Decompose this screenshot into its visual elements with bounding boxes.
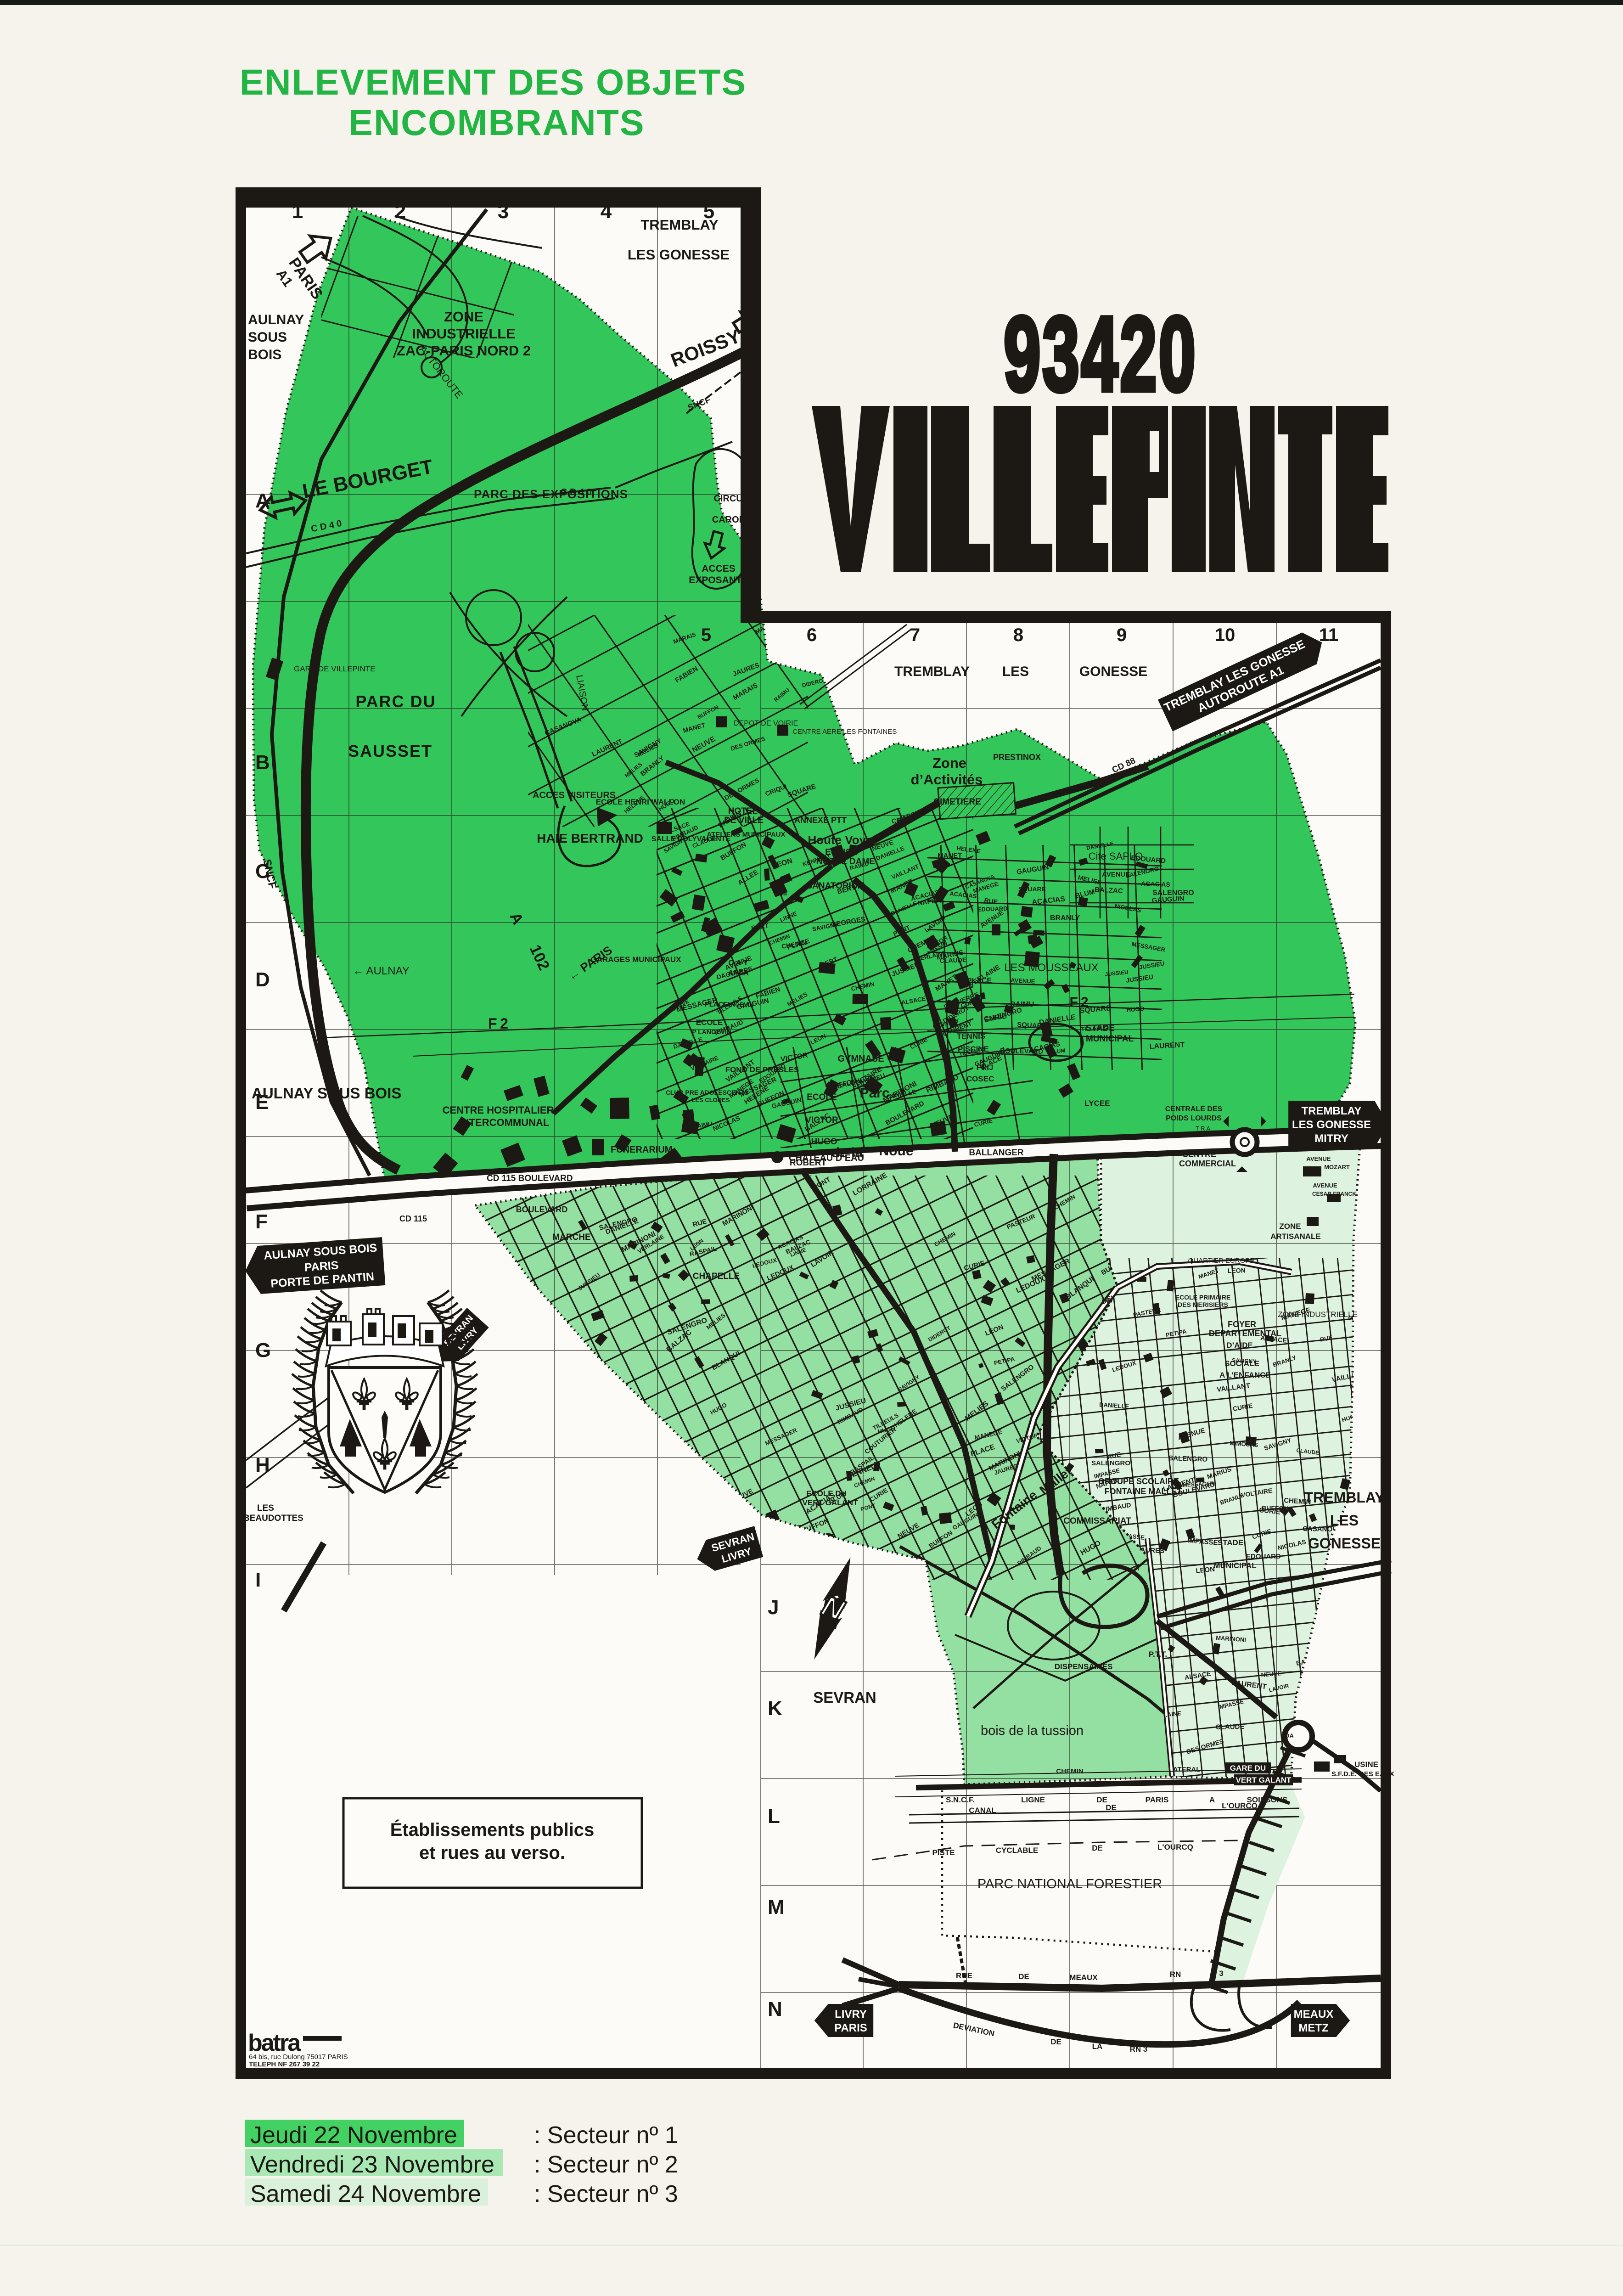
svg-text:B: B (255, 751, 270, 774)
svg-text:AULNAY: AULNAY (248, 312, 304, 327)
svg-text:BALZAC: BALZAC (1095, 886, 1123, 895)
svg-text:RN 3: RN 3 (1130, 2045, 1148, 2054)
svg-text:CENTRE AERE LES FONTAINES: CENTRE AERE LES FONTAINES (792, 728, 897, 736)
svg-text:Samedi 24 Novembre: Samedi 24 Novembre (250, 2181, 481, 2207)
svg-text:F 2: F 2 (1069, 995, 1088, 1010)
svg-text:ZAC-PARIS NORD 2: ZAC-PARIS NORD 2 (397, 343, 531, 359)
svg-text:PISCINE: PISCINE (958, 1045, 989, 1053)
svg-text:INDUSTRIELLE: INDUSTRIELLE (412, 326, 516, 342)
svg-text:COSEC: COSEC (966, 1075, 994, 1083)
svg-text:GARE DU: GARE DU (1230, 1764, 1266, 1773)
svg-text:G: G (255, 1339, 271, 1362)
svg-text:METZ: METZ (1298, 2022, 1328, 2034)
svg-text:CENTRE HOSPITALIER: CENTRE HOSPITALIER (443, 1104, 554, 1116)
svg-text:MEAUX: MEAUX (1294, 2008, 1334, 2020)
svg-text:COMMISSARIAT: COMMISSARIAT (1063, 1516, 1131, 1526)
svg-text:EGLISE: EGLISE (825, 848, 857, 857)
svg-text:GARE DE VILLEPINTE: GARE DE VILLEPINTE (294, 664, 376, 673)
svg-text:CENTRE: CENTRE (1182, 1150, 1216, 1159)
svg-text:INTERCOMMUNAL: INTERCOMMUNAL (459, 1117, 550, 1128)
svg-text:DES MERISIERS: DES MERISIERS (1178, 1301, 1228, 1308)
svg-text:MUNICIPAL: MUNICIPAL (1213, 1561, 1256, 1570)
svg-text:A L’ENFANCE: A L’ENFANCE (1219, 1371, 1271, 1379)
svg-text:SALENGRO: SALENGRO (1168, 1454, 1208, 1463)
svg-text:S.N.C.F.: S.N.C.F. (946, 1795, 975, 1804)
svg-text:VERT GALANT: VERT GALANT (803, 1498, 859, 1507)
svg-text:PLACE: PLACE (967, 977, 992, 985)
svg-text:Jeudi 22 Novembre: Jeudi 22 Novembre (250, 2122, 457, 2149)
svg-text:SOCIALE: SOCIALE (1224, 1359, 1259, 1368)
svg-text:PMI: PMI (774, 889, 787, 897)
svg-text:D: D (255, 968, 270, 991)
svg-text:BOIS: BOIS (248, 347, 281, 362)
svg-text:Noue: Noue (879, 1143, 914, 1159)
svg-text:EXPOSANTS: EXPOSANTS (689, 575, 748, 585)
svg-text:GONESSE: GONESSE (1308, 1535, 1381, 1552)
svg-text:LYCEE: LYCEE (1084, 1099, 1110, 1108)
svg-text:CENTRALE DES: CENTRALE DES (1165, 1105, 1223, 1113)
svg-text:T R A: T R A (1196, 1125, 1211, 1132)
svg-text:CHEMIN: CHEMIN (1056, 1767, 1083, 1775)
svg-text:SAUSSET: SAUSSET (348, 742, 432, 760)
svg-text:AVENUE: AVENUE (1011, 977, 1035, 985)
svg-text:MUNICIPAL: MUNICIPAL (1086, 1034, 1134, 1044)
svg-text:DEPOT DE VOIRIE: DEPOT DE VOIRIE (734, 720, 798, 727)
svg-text:7: 7 (910, 625, 920, 645)
svg-text:USINE: USINE (1354, 1760, 1378, 1769)
svg-text:ZONE: ZONE (1279, 1222, 1301, 1231)
svg-text:L: L (768, 1805, 780, 1828)
svg-text:AVENUE: AVENUE (1313, 1182, 1337, 1189)
svg-text:APFA: APFA (728, 968, 748, 977)
svg-text:LA: LA (1092, 2042, 1103, 2051)
svg-text:BUFFON: BUFFON (1262, 1504, 1289, 1512)
svg-text:← AULNAY: ← AULNAY (353, 965, 410, 977)
svg-text:MOZART: MOZART (1324, 1164, 1350, 1171)
svg-text:DE: DE (1018, 1972, 1029, 1981)
svg-text:10: 10 (1215, 625, 1236, 645)
svg-text:DE: DE (1106, 1803, 1117, 1812)
svg-text:RN: RN (1170, 1970, 1181, 1979)
svg-text:P.T.T.: P.T.T. (1149, 1650, 1167, 1659)
svg-text:LES: LES (1002, 664, 1029, 679)
svg-text:DISPENSAIRES: DISPENSAIRES (1055, 1662, 1113, 1671)
svg-text:et rues au verso.: et rues au verso. (419, 1843, 565, 1863)
svg-text:64 bis, rue Dulong 75017 PARIS: 64 bis, rue Dulong 75017 PARIS (249, 2053, 348, 2061)
svg-text:ENLEVEMENT DES OBJETS: ENLEVEMENT DES OBJETS (240, 62, 747, 102)
svg-text:: Secteur nº 3: : Secteur nº 3 (534, 2181, 678, 2207)
svg-text:Cite SAPLO: Cite SAPLO (1089, 850, 1143, 862)
svg-text:COMMERCIAL: COMMERCIAL (1179, 1159, 1236, 1168)
svg-text:BEAUDOTTES: BEAUDOTTES (243, 1514, 303, 1523)
svg-text:SANATORIUM: SANATORIUM (806, 881, 865, 891)
svg-text:VERT GALANT: VERT GALANT (1236, 1776, 1292, 1784)
svg-text:6: 6 (807, 625, 817, 645)
svg-text:LIGNE: LIGNE (1021, 1795, 1045, 1804)
svg-text:LES CLORES: LES CLORES (691, 1097, 730, 1103)
svg-text:D’AIDE: D’AIDE (1226, 1341, 1253, 1350)
svg-text:DEPARTEMENTAL: DEPARTEMENTAL (1209, 1329, 1281, 1338)
svg-text:: Secteur nº 1: : Secteur nº 1 (534, 2122, 678, 2149)
svg-text:S.F.D.E.: S.F.D.E. (1331, 1770, 1357, 1778)
svg-text:3: 3 (1219, 1969, 1223, 1978)
svg-text:11: 11 (1319, 625, 1338, 645)
svg-text:CD 115 BOULEVARD: CD 115 BOULEVARD (487, 1174, 573, 1183)
svg-text:HAIE BERTRAND: HAIE BERTRAND (537, 831, 643, 845)
svg-text:BALLANGER: BALLANGER (969, 1148, 1024, 1158)
svg-text:PARC NATIONAL FORESTIER: PARC NATIONAL FORESTIER (977, 1877, 1162, 1891)
svg-text:PARIS: PARIS (1146, 1795, 1169, 1804)
svg-text:ECOLE HENRI WALLON: ECOLE HENRI WALLON (596, 798, 685, 806)
svg-text:Vendredi 23 Novembre: Vendredi 23 Novembre (250, 2151, 494, 2178)
svg-text:GONESSE: GONESSE (1079, 664, 1147, 679)
svg-text:ARTISANALE: ARTISANALE (1270, 1232, 1321, 1241)
svg-text:Zone: Zone (932, 755, 966, 771)
svg-text:HOTEL: HOTEL (728, 806, 758, 816)
svg-text:MANET: MANET (938, 852, 962, 860)
svg-text:C A T: C A T (728, 958, 748, 967)
svg-text:CYCLABLE: CYCLABLE (996, 1846, 1039, 1855)
svg-text:PARIS: PARIS (304, 1259, 339, 1274)
svg-text:STADE: STADE (1086, 1024, 1115, 1033)
svg-text:d’Activités: d’Activités (911, 771, 983, 788)
svg-text:POIDS LOURDS: POIDS LOURDS (1166, 1114, 1222, 1122)
svg-text:Établissements publics: Établissements publics (390, 1819, 595, 1840)
svg-text:LES MOUSSEAUX: LES MOUSSEAUX (1004, 962, 1098, 974)
svg-text:CD 115: CD 115 (399, 1214, 427, 1223)
svg-text:VICTOR: VICTOR (805, 1115, 838, 1125)
svg-text:FRIJ: FRIJ (977, 1063, 994, 1072)
svg-text:QUARTIER EUROPE: QUARTIER EUROPE (1188, 1257, 1255, 1265)
svg-text:A: A (1209, 1795, 1215, 1804)
svg-text:CLUB PRE ADOLESCENTS: CLUB PRE ADOLESCENTS (666, 1089, 749, 1096)
svg-text:MEAUX: MEAUX (1069, 1973, 1098, 1982)
svg-text:DE: DE (1092, 1844, 1103, 1852)
svg-text:GYMNASE: GYMNASE (837, 1054, 884, 1064)
svg-text:FUNERARIUM: FUNERARIUM (611, 1145, 672, 1155)
svg-text:ENCOMBRANTS: ENCOMBRANTS (348, 102, 645, 143)
svg-text:LATERAL: LATERAL (1169, 1766, 1201, 1773)
svg-text:TELEPH NF 267 39 22: TELEPH NF 267 39 22 (249, 2060, 320, 2068)
svg-text:Parc: Parc (859, 1086, 889, 1101)
svg-text:F: F (255, 1210, 268, 1233)
svg-text:ECOLE PRIMAIRE: ECOLE PRIMAIRE (1175, 1294, 1231, 1301)
svg-text:PARC DU: PARC DU (355, 692, 436, 711)
svg-text:bois de la tussion: bois de la tussion (981, 1723, 1084, 1738)
svg-text:K: K (768, 1697, 782, 1720)
svg-text:L'OURCQ: L'OURCQ (1222, 1801, 1258, 1810)
svg-text:EDOUARD: EDOUARD (1246, 1553, 1281, 1560)
svg-text:BRANLY: BRANLY (1050, 914, 1080, 922)
svg-text:MITRY: MITRY (1314, 1132, 1348, 1145)
svg-text:H: H (255, 1454, 270, 1476)
svg-text:C D 4 0: C D 4 0 (561, 487, 592, 497)
svg-text:LES: LES (257, 1503, 274, 1513)
svg-text:ACACIAS: ACACIAS (1141, 880, 1170, 888)
svg-text:AVENUE: AVENUE (1306, 1155, 1331, 1162)
svg-text:FOND DE PRESLES: FOND DE PRESLES (725, 1065, 799, 1074)
svg-text:L'OURCQ: L'OURCQ (1157, 1843, 1193, 1851)
svg-text:FONTAINE MALLET: FONTAINE MALLET (1105, 1487, 1182, 1496)
svg-text:ZONE INDUSTRIELLE: ZONE INDUSTRIELLE (1278, 1310, 1358, 1319)
svg-text:J: J (768, 1596, 779, 1619)
svg-text:GROUPE SCOLAIRE: GROUPE SCOLAIRE (1098, 1477, 1179, 1486)
svg-text:ECOLE DU: ECOLE DU (806, 1489, 847, 1498)
svg-text:RAIMU: RAIMU (1010, 1001, 1034, 1008)
svg-text:LES GONESSE: LES GONESSE (1292, 1119, 1371, 1131)
svg-text:CANAL: CANAL (969, 1806, 996, 1815)
svg-text:STADE: STADE (1218, 1538, 1243, 1547)
svg-text:CESAR FRANCK: CESAR FRANCK (1312, 1191, 1356, 1197)
svg-text:TREMBLAY: TREMBLAY (1304, 1489, 1385, 1506)
svg-text:: Secteur nº 2: : Secteur nº 2 (534, 2151, 678, 2178)
svg-text:CIMETIERE: CIMETIERE (933, 797, 981, 807)
svg-text:I: I (255, 1569, 261, 1591)
svg-text:M: M (768, 1896, 785, 1919)
svg-text:CLAUDE: CLAUDE (1216, 1723, 1245, 1731)
svg-text:5: 5 (701, 625, 711, 645)
svg-text:ANNEXE PTT: ANNEXE PTT (794, 816, 847, 825)
svg-text:PARIS: PARIS (834, 2022, 867, 2034)
svg-text:PARC DES EXPOSITIONS: PARC DES EXPOSITIONS (474, 487, 628, 501)
svg-text:9: 9 (1117, 625, 1127, 645)
svg-text:DE: DE (1050, 2037, 1061, 2046)
svg-text:93420: 93420 (1004, 295, 1197, 413)
svg-text:EDOUARD: EDOUARD (977, 905, 1008, 913)
svg-text:ECOLE: ECOLE (807, 1092, 837, 1102)
svg-text:GARAGES MUNICIPAUX: GARAGES MUNICIPAUX (590, 955, 681, 964)
svg-text:LIVRY: LIVRY (835, 2008, 867, 2020)
svg-text:DE VILLE: DE VILLE (724, 816, 764, 825)
svg-text:SQUARE: SQUARE (1018, 885, 1046, 893)
svg-text:SALLE POLYVALENTE: SALLE POLYVALENTE (651, 835, 731, 843)
svg-text:TREMBLAY: TREMBLAY (1301, 1105, 1361, 1117)
svg-text:F 2: F 2 (488, 1015, 508, 1032)
svg-text:SALENGRO: SALENGRO (1091, 1459, 1130, 1467)
svg-text:PRESTINOX: PRESTINOX (993, 753, 1041, 762)
svg-text:NOTRE DAME: NOTRE DAME (816, 857, 875, 867)
svg-text:batra: batra (248, 2030, 301, 2056)
svg-text:TREMBLAY: TREMBLAY (894, 664, 970, 679)
svg-text:ACCES: ACCES (702, 563, 736, 574)
svg-text:LES GONESSE: LES GONESSE (628, 247, 730, 263)
svg-text:CHAPELLE: CHAPELLE (693, 1272, 740, 1281)
svg-text:8: 8 (1013, 625, 1023, 645)
svg-text:SOUS: SOUS (248, 330, 287, 345)
svg-text:N: N (768, 1998, 782, 2020)
svg-text:ECOLE: ECOLE (696, 1018, 723, 1027)
svg-text:LEON: LEON (1228, 1266, 1246, 1274)
svg-text:FOYER: FOYER (1228, 1320, 1256, 1329)
svg-text:PISTE: PISTE (932, 1848, 955, 1857)
svg-text:SEVRAN: SEVRAN (813, 1689, 876, 1706)
svg-text:TREMBLAY: TREMBLAY (640, 217, 719, 233)
svg-text:ZONE: ZONE (444, 309, 483, 325)
svg-text:de la: de la (831, 1145, 863, 1160)
svg-text:MARCHE: MARCHE (552, 1232, 590, 1242)
svg-text:Houte Voye: Houte Voye (808, 833, 872, 847)
svg-text:BOULEVARD: BOULEVARD (516, 1205, 568, 1214)
svg-text:LANGEVIN: LANGEVIN (723, 1001, 753, 1008)
svg-text:TENNIS: TENNIS (957, 1032, 985, 1041)
svg-text:P LANGEVIN: P LANGEVIN (692, 1028, 731, 1035)
